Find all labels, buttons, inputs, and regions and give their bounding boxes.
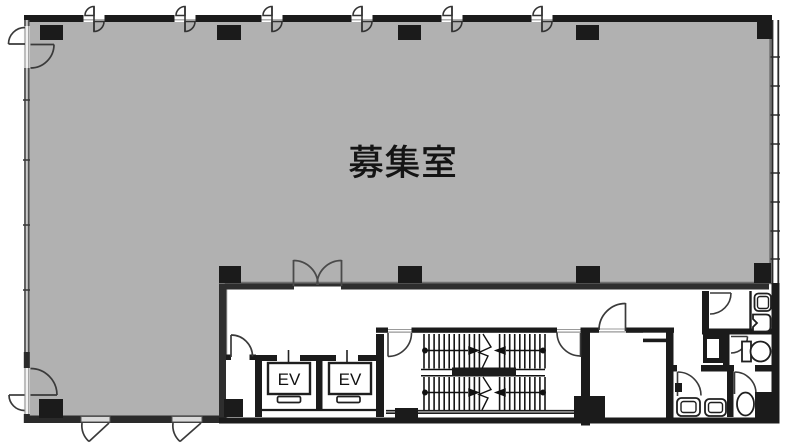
svg-text:EV: EV [339,370,362,389]
svg-text:EV: EV [278,370,301,389]
